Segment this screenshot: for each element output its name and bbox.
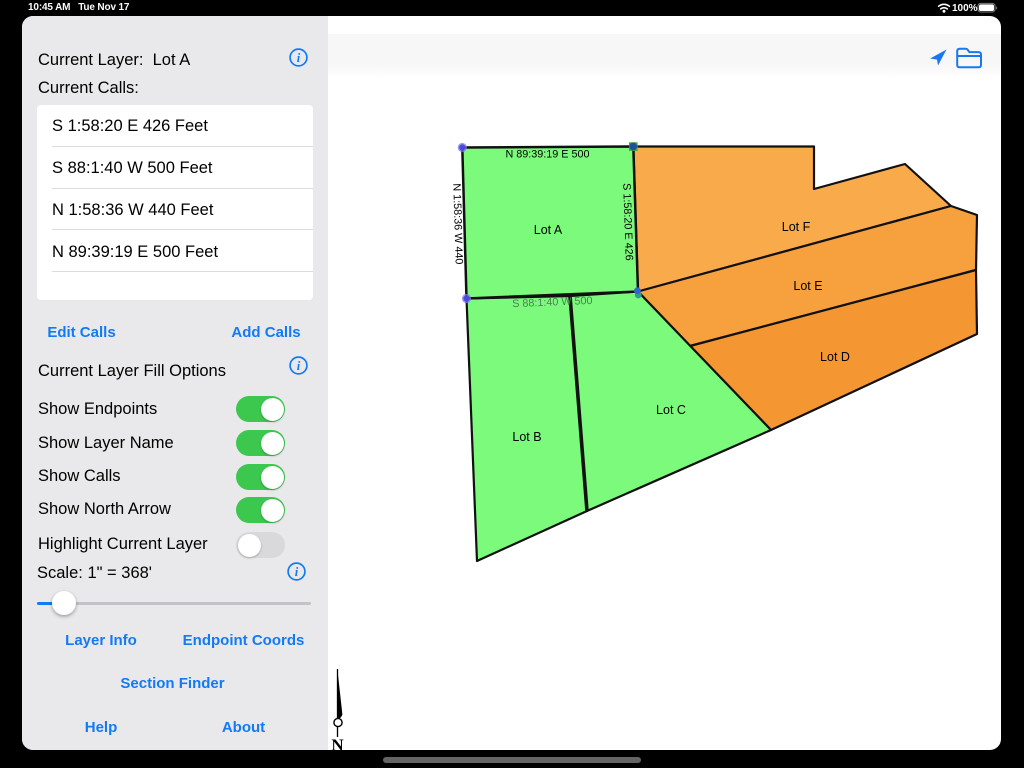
svg-text:Lot E: Lot E <box>793 279 822 293</box>
svg-text:Lot D: Lot D <box>820 350 850 364</box>
svg-text:S 1:58:20 E 426: S 1:58:20 E 426 <box>620 183 635 261</box>
svg-text:N 89:39:19 E 500: N 89:39:19 E 500 <box>505 149 589 161</box>
svg-text:N: N <box>331 736 344 755</box>
svg-text:Lot B: Lot B <box>512 430 541 444</box>
svg-text:N 1:58:36 W 440: N 1:58:36 W 440 <box>450 183 464 264</box>
svg-text:Lot C: Lot C <box>656 403 686 417</box>
svg-text:Lot F: Lot F <box>782 220 811 234</box>
svg-text:Lot A: Lot A <box>534 223 563 237</box>
